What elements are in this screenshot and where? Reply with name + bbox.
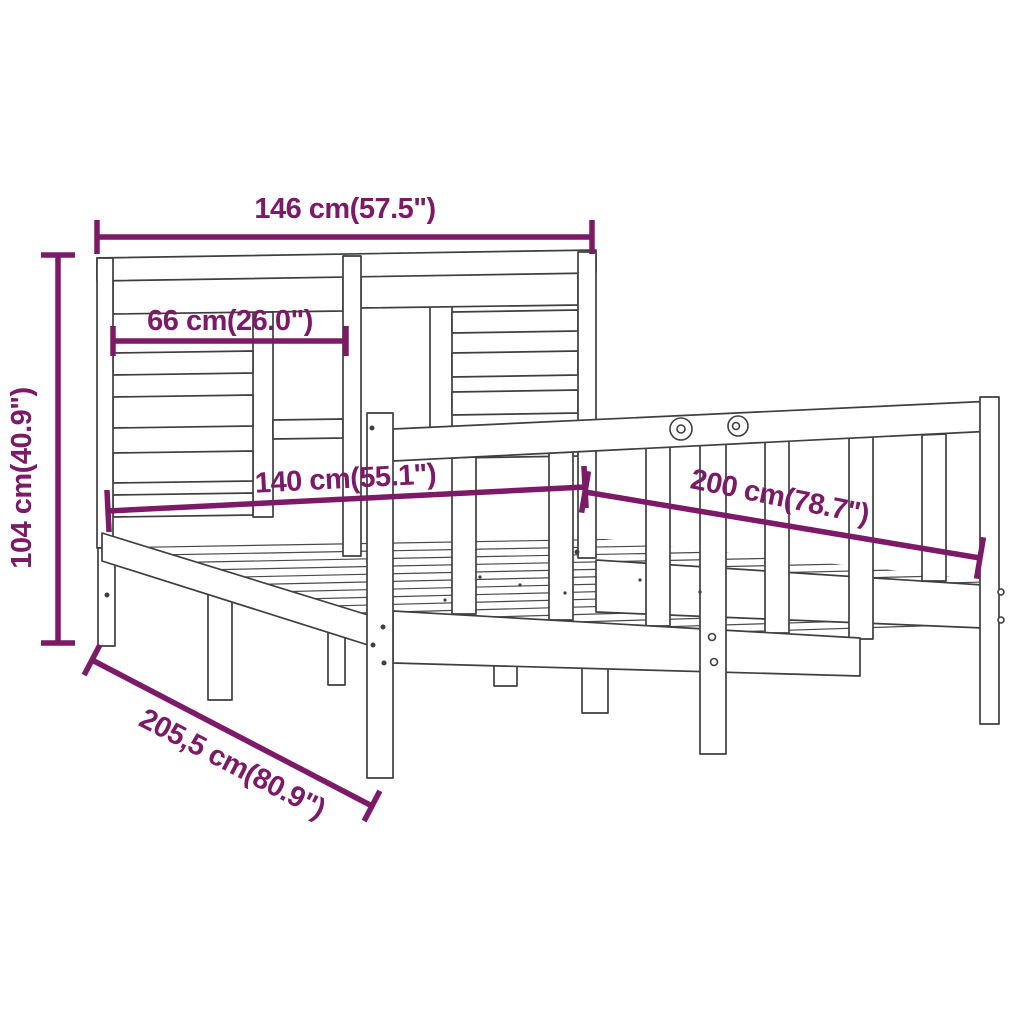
- footboard-post-far: [980, 397, 999, 724]
- headboard-slat: [113, 395, 253, 428]
- footboard-baluster: [452, 457, 476, 614]
- dimension-label: 104 cm(40.9"): [6, 387, 38, 568]
- footboard-baluster: [765, 441, 789, 633]
- headboard-slat: [273, 419, 343, 439]
- product-dimension-diagram: 146 cm(57.5")66 cm(26.0")104 cm(40.9")14…: [0, 0, 1024, 1024]
- cam-lock-screw-icon: [733, 423, 740, 430]
- headboard-post-center: [343, 256, 361, 556]
- cam-lock-screw-icon: [677, 425, 685, 433]
- dimension-label: 146 cm(57.5"): [254, 193, 435, 225]
- fitting-detail-icon: [698, 590, 701, 593]
- footboard-baluster: [549, 452, 573, 620]
- fitting-detail-icon: [443, 598, 446, 601]
- screw-icon: [381, 625, 386, 630]
- fitting-detail-icon: [478, 575, 481, 578]
- headboard-slat: [452, 351, 578, 377]
- headboard-slat: [113, 351, 253, 375]
- dimension-headboard-inner-width: 66 cm(26.0"): [113, 305, 346, 356]
- footboard-baluster: [646, 447, 670, 626]
- screw-icon: [105, 593, 110, 598]
- screw-icon: [709, 634, 716, 641]
- headboard-slat: [452, 390, 578, 415]
- dimension-headboard-total-width: 146 cm(57.5"): [97, 193, 592, 254]
- headboard-slat: [452, 310, 578, 333]
- fitting-detail-icon: [518, 583, 521, 586]
- screw-icon: [371, 643, 376, 648]
- fitting-detail-icon: [638, 578, 641, 581]
- dimension-tick: [107, 490, 109, 532]
- screw-icon: [382, 661, 387, 666]
- dimension-label: 66 cm(26.0"): [147, 305, 313, 337]
- fitting-detail-icon: [563, 591, 566, 594]
- screw-icon: [370, 426, 375, 431]
- screw-icon: [575, 550, 580, 555]
- screw-icon: [998, 589, 1004, 595]
- headboard-slat: [113, 451, 253, 483]
- diagram-svg: 146 cm(57.5")66 cm(26.0")104 cm(40.9")14…: [0, 0, 1024, 1024]
- left-side-rail: [102, 533, 368, 645]
- dimension-headboard-height: 104 cm(40.9"): [6, 255, 75, 643]
- screw-icon: [711, 659, 718, 666]
- screw-icon: [998, 617, 1004, 623]
- footboard-baluster: [922, 434, 946, 581]
- dimension-label: 205,5 cm(80.9"): [134, 703, 330, 826]
